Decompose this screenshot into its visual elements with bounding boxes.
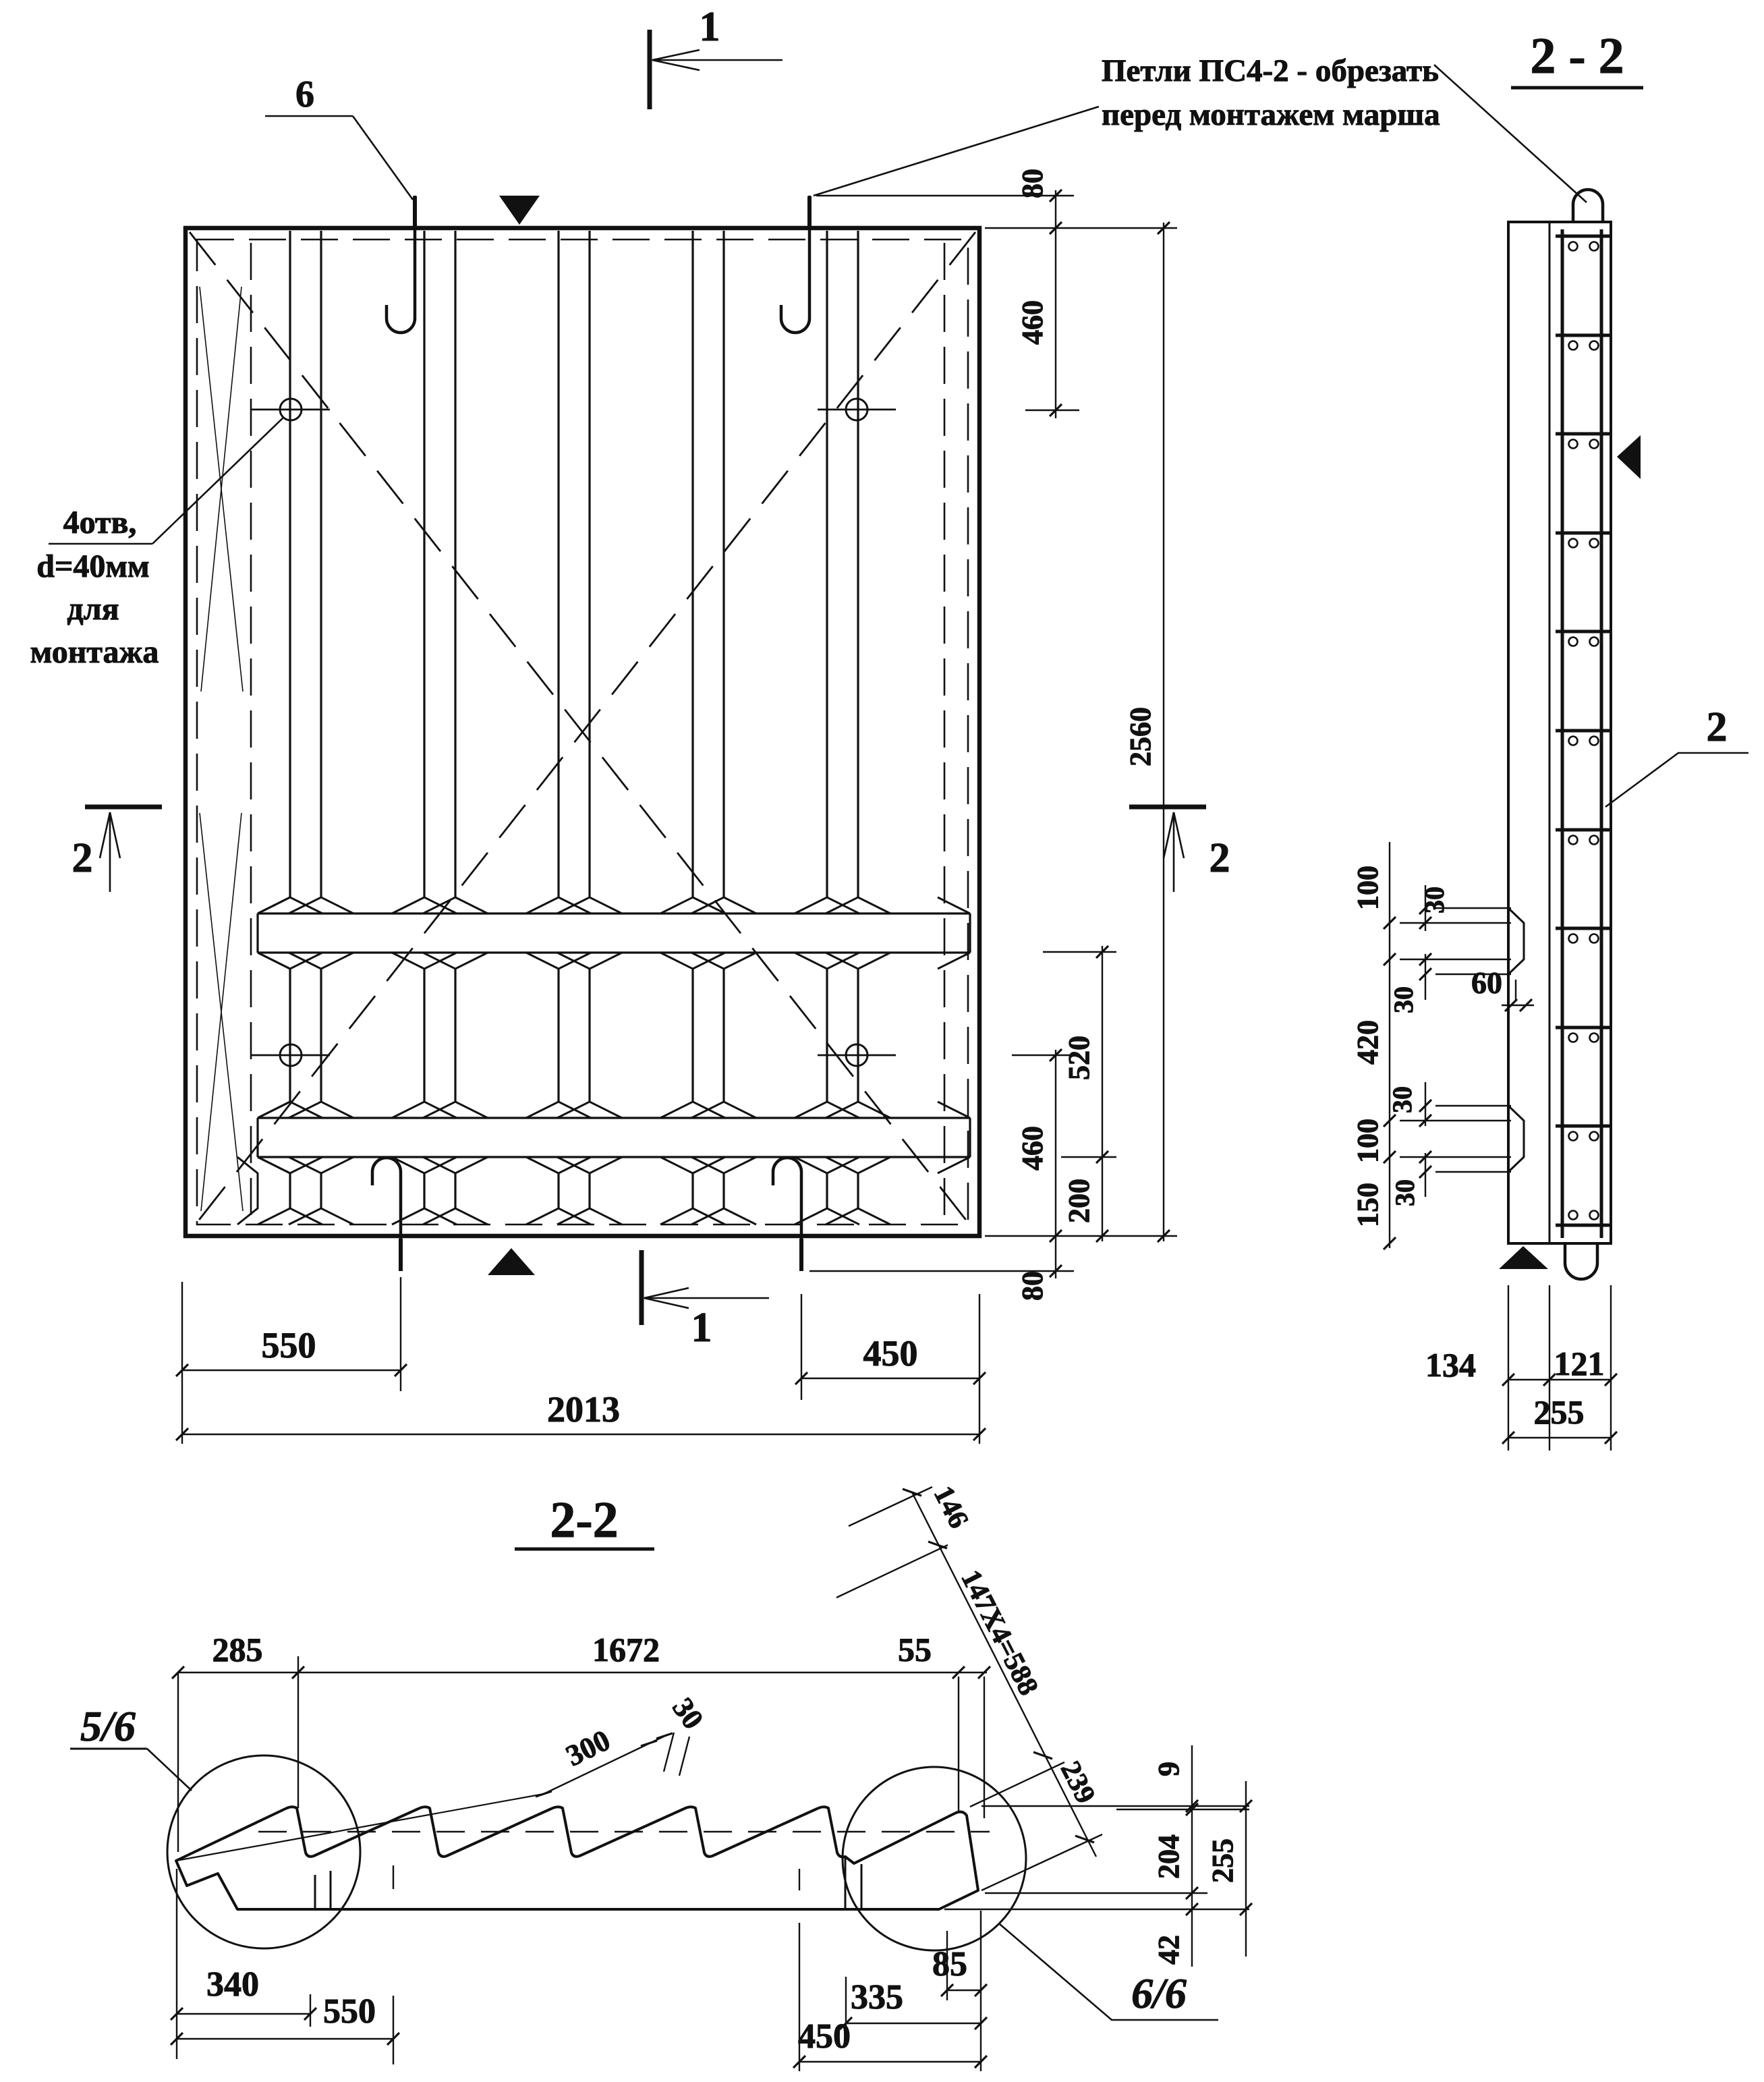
svg-text:255: 255 xyxy=(1206,1838,1239,1883)
svg-text:9: 9 xyxy=(1152,1762,1185,1776)
svg-text:255: 255 xyxy=(1534,1393,1585,1431)
svg-text:2013: 2013 xyxy=(547,1389,620,1430)
svg-text:550: 550 xyxy=(323,1992,376,2031)
svg-text:30: 30 xyxy=(1387,1086,1417,1113)
svg-text:460: 460 xyxy=(1016,1126,1049,1171)
svg-text:335: 335 xyxy=(851,1978,903,2017)
svg-text:монтажа: монтажа xyxy=(30,634,159,670)
svg-text:100: 100 xyxy=(1351,1119,1384,1163)
svg-text:450: 450 xyxy=(863,1333,918,1374)
svg-text:2: 2 xyxy=(72,835,93,881)
svg-text:60: 60 xyxy=(1471,965,1502,1000)
svg-text:100: 100 xyxy=(1351,866,1384,910)
svg-text:134: 134 xyxy=(1425,1346,1476,1384)
svg-text:перед монтажем марша: перед монтажем марша xyxy=(1102,97,1440,132)
svg-text:121: 121 xyxy=(1554,1345,1605,1382)
svg-text:460: 460 xyxy=(1016,300,1049,345)
svg-text:80: 80 xyxy=(1016,1271,1049,1301)
svg-text:1: 1 xyxy=(700,4,720,50)
svg-text:200: 200 xyxy=(1062,1179,1096,1223)
svg-text:2: 2 xyxy=(1707,704,1728,750)
svg-text:для: для xyxy=(67,591,119,627)
svg-text:2-2: 2-2 xyxy=(550,1492,618,1548)
svg-text:204: 204 xyxy=(1152,1834,1185,1879)
svg-text:2: 2 xyxy=(1210,835,1230,881)
svg-text:4отв,: 4отв, xyxy=(63,505,137,540)
svg-text:80: 80 xyxy=(1016,169,1049,198)
svg-text:5/6: 5/6 xyxy=(80,1702,136,1750)
svg-text:30: 30 xyxy=(1419,887,1450,913)
svg-text:6: 6 xyxy=(295,74,314,115)
svg-text:42: 42 xyxy=(1152,1935,1185,1965)
svg-text:30: 30 xyxy=(1388,986,1419,1013)
svg-text:d=40мм: d=40мм xyxy=(36,548,149,584)
svg-text:1672: 1672 xyxy=(592,1631,660,1668)
svg-text:2560: 2560 xyxy=(1124,707,1157,766)
svg-text:Петли ПС4-2 - обрезать: Петли ПС4-2 - обрезать xyxy=(1102,53,1439,88)
svg-text:30: 30 xyxy=(1390,1179,1420,1206)
svg-text:450: 450 xyxy=(798,2017,851,2056)
svg-text:55: 55 xyxy=(898,1631,932,1668)
svg-text:2 - 2: 2 - 2 xyxy=(1530,28,1624,84)
svg-text:285: 285 xyxy=(212,1631,263,1668)
svg-text:340: 340 xyxy=(206,1965,259,2004)
svg-text:520: 520 xyxy=(1062,1036,1096,1080)
svg-text:550: 550 xyxy=(262,1325,316,1366)
svg-text:150: 150 xyxy=(1351,1183,1384,1227)
svg-text:420: 420 xyxy=(1351,1020,1384,1065)
svg-text:6/6: 6/6 xyxy=(1131,1969,1187,2017)
svg-text:1: 1 xyxy=(691,1305,712,1351)
